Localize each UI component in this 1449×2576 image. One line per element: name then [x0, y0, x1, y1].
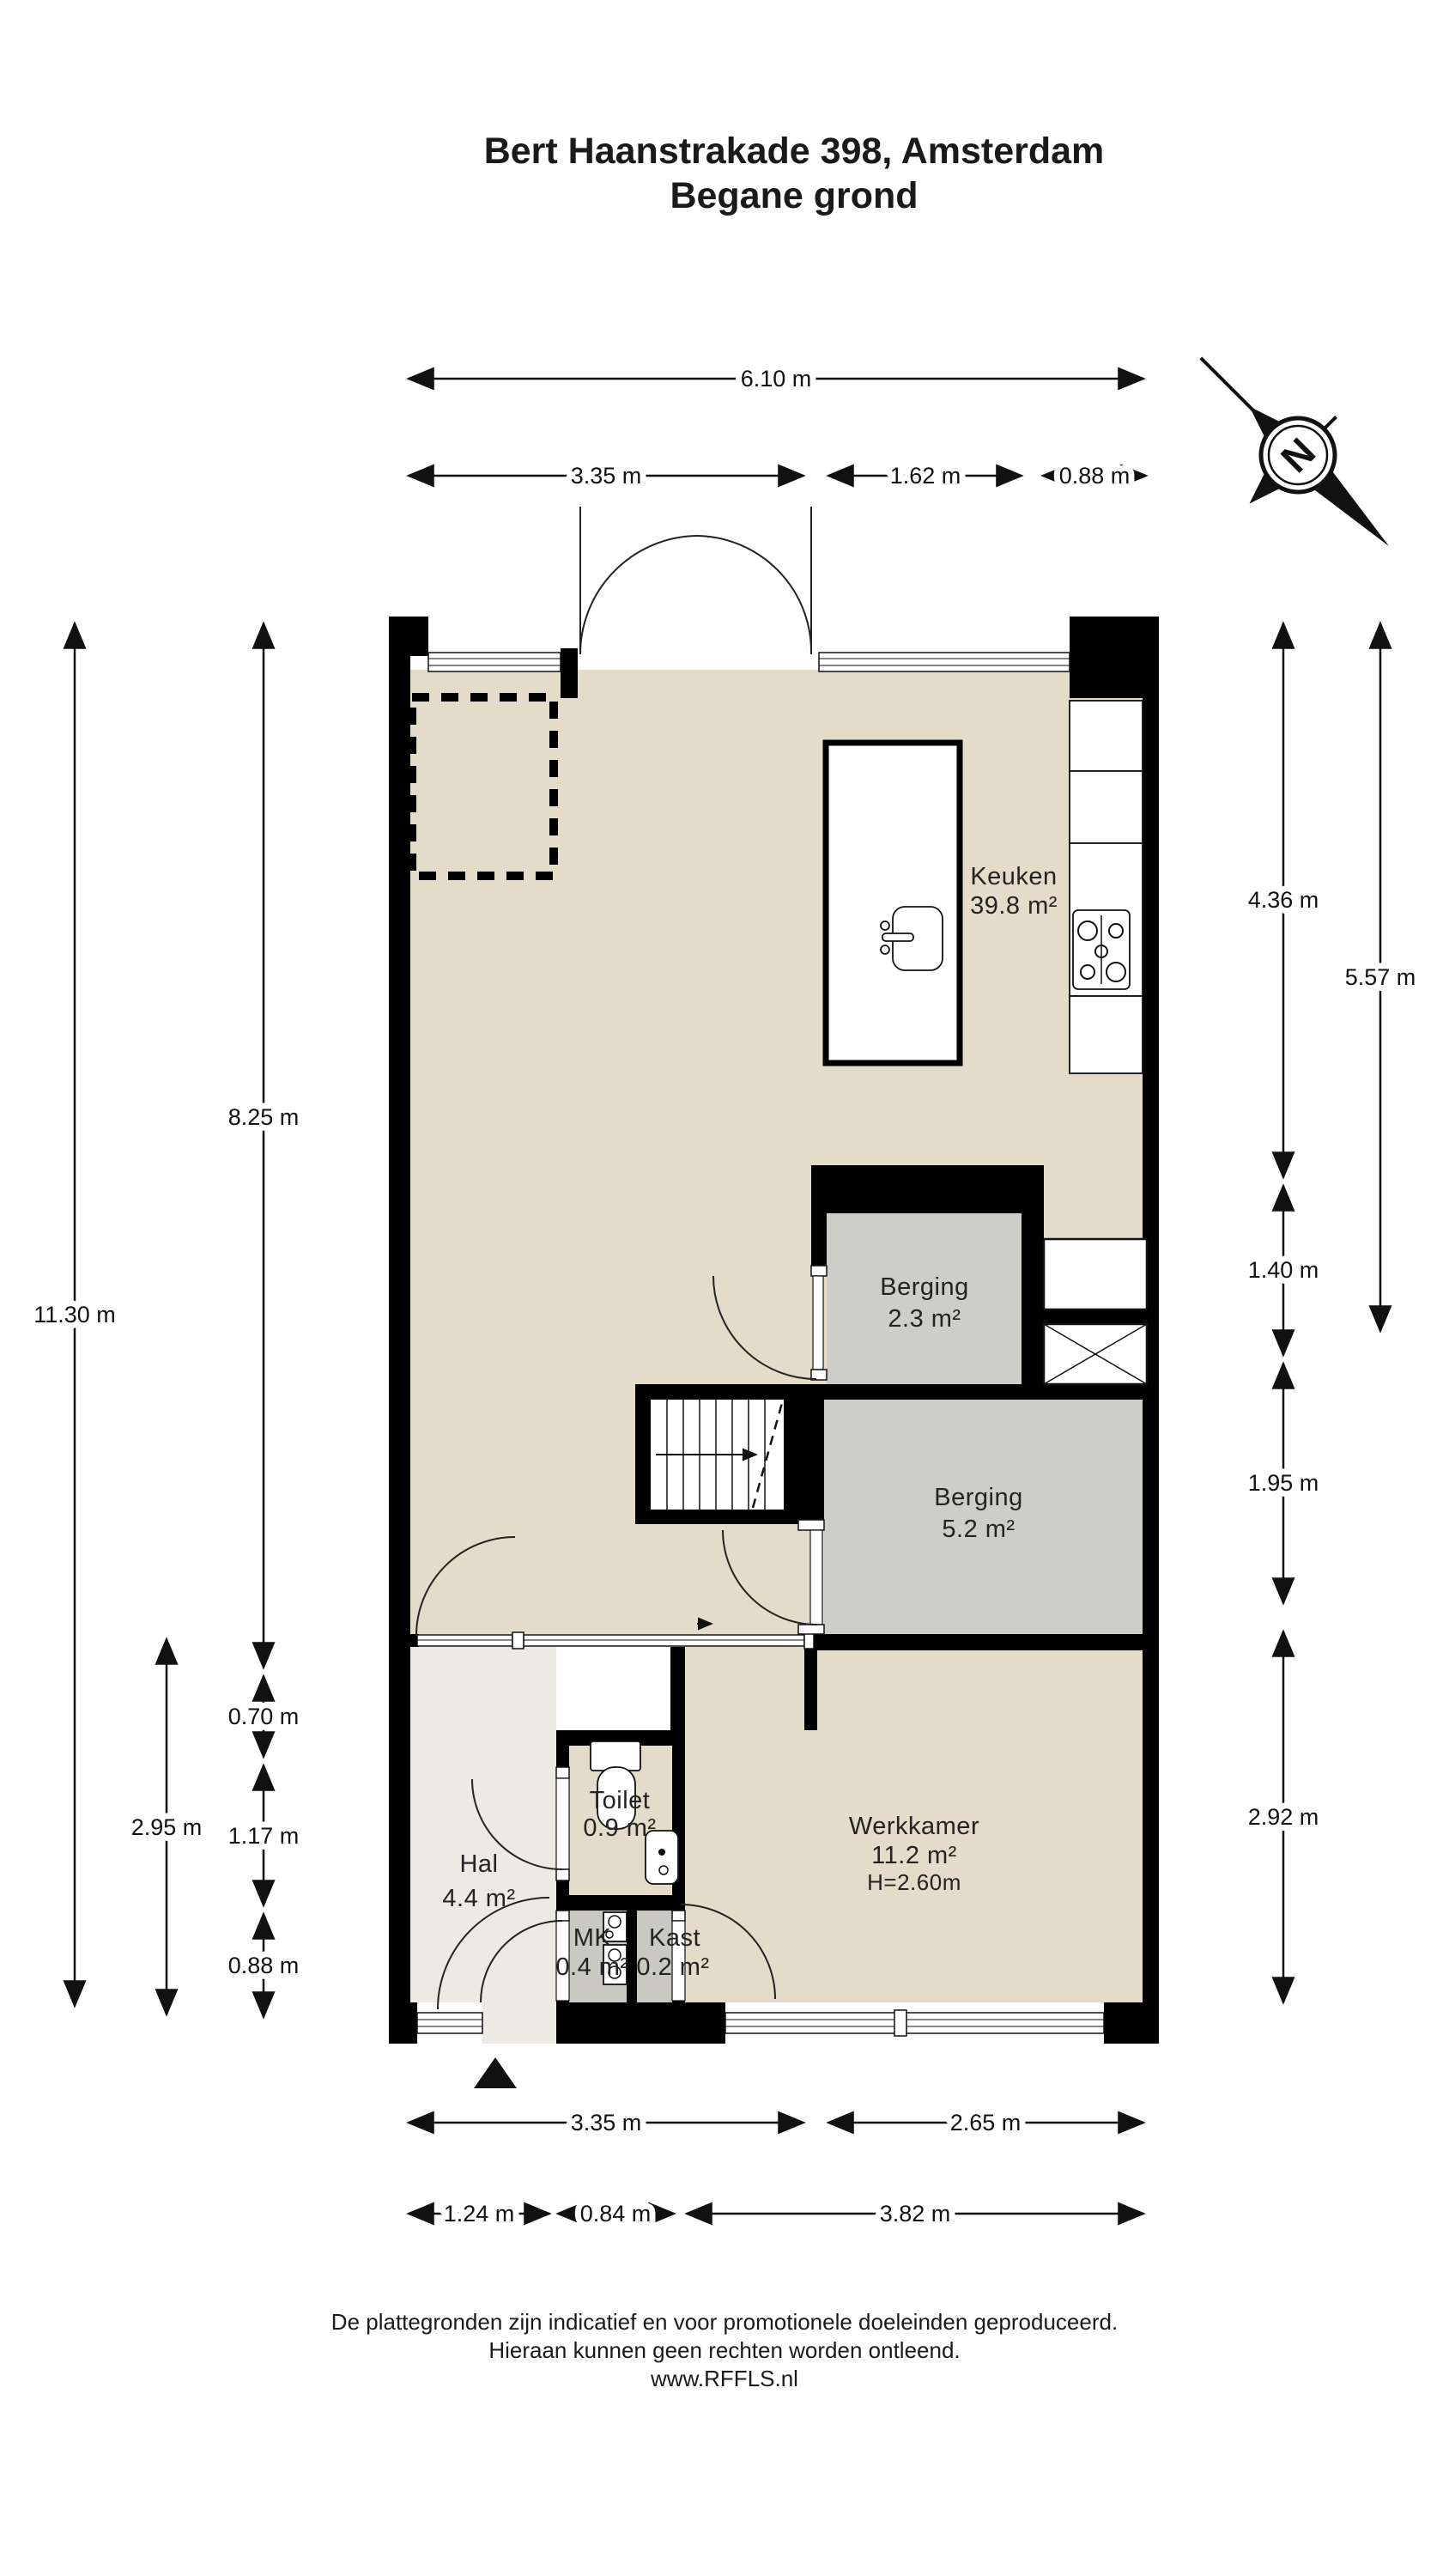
label-werkkamer: Werkkamer: [849, 1813, 979, 1840]
dim-top-mid: 1.62 m: [890, 463, 961, 489]
window-entrance-sidelight: [417, 2013, 482, 2033]
dim-bottom-row2-mid: 0.84 m: [580, 2201, 652, 2227]
dim-bottom-right: 2.65 m: [950, 2110, 1022, 2136]
toilet-cistern-icon: [591, 1741, 640, 1771]
floorplan-page: Bert Haanstrakade 398, Amsterdam Begane …: [0, 0, 1449, 2576]
dim-left-small2: 1.17 m: [228, 1823, 300, 1849]
dim-bottom-row2-right: 3.82 m: [880, 2201, 951, 2227]
label-berging-groot: Berging: [934, 1484, 1022, 1511]
entrance-gap-floor: [482, 2002, 556, 2044]
label-mk: MK: [573, 1924, 612, 1952]
label-kast-area: 0.2 m²: [636, 1953, 709, 1981]
french-door-right-arc: [695, 536, 811, 654]
disclaimer-website: www.RFFLS.nl: [0, 2365, 1449, 2393]
label-mk-area: 0.4 m²: [555, 1953, 628, 1981]
window-werkkamer: [725, 2013, 1104, 2033]
dim-right-berging: 1.95 m: [1248, 1470, 1319, 1496]
dim-bottom-left: 3.35 m: [571, 2110, 642, 2136]
dim-left-hall: 2.95 m: [131, 1814, 203, 1840]
window-top-left: [428, 653, 561, 671]
label-keuken: Keuken: [970, 863, 1057, 890]
title-address: Bert Haanstrakade 398, Amsterdam: [322, 129, 1266, 173]
faucet-icon: [882, 933, 913, 941]
disclaimer-line2: Hieraan kunnen geen rechten worden ontle…: [0, 2336, 1449, 2365]
compass-icon: N: [1152, 319, 1427, 594]
kitchen-island: [826, 743, 960, 1063]
disclaimer: De plattegronden zijn indicatief en voor…: [0, 2308, 1449, 2393]
dim-right-outer: 5.57 m: [1345, 964, 1416, 990]
dim-left-small1: 0.70 m: [228, 1704, 300, 1729]
page-title: Bert Haanstrakade 398, Amsterdam Begane …: [322, 129, 1266, 218]
kitchen-counter: [1070, 701, 1143, 1073]
label-werkkamer-height: H=2.60m: [867, 1869, 961, 1895]
label-werkkamer-area: 11.2 m²: [871, 1842, 957, 1869]
shaft-crossed: [1044, 1324, 1147, 1384]
label-kast: Kast: [649, 1924, 700, 1952]
dim-right-kitchen: 4.36 m: [1248, 887, 1319, 913]
dim-left-small3: 0.88 m: [228, 1953, 300, 1978]
dim-top-total: 6.10 m: [741, 366, 812, 392]
window-top-right: [819, 653, 1070, 671]
label-keuken-area: 39.8 m²: [970, 892, 1058, 920]
disclaimer-line1: De plattegronden zijn indicatief en voor…: [0, 2308, 1449, 2336]
dim-left-total: 11.30 m: [33, 1302, 116, 1327]
label-berging-groot-area: 5.2 m²: [942, 1516, 1015, 1543]
label-toilet-area: 0.9 m²: [583, 1814, 656, 1842]
label-berging-klein-area: 2.3 m²: [888, 1305, 961, 1333]
label-hal-area: 4.4 m²: [442, 1885, 515, 1912]
french-door-left-arc: [580, 536, 695, 654]
dim-bottom-row2-left: 1.24 m: [444, 2201, 515, 2227]
dim-top-right: 0.88 m: [1059, 463, 1131, 489]
shaft-niche: [1044, 1239, 1147, 1309]
label-hal: Hal: [459, 1850, 498, 1878]
room-hal-floor: [410, 1647, 556, 2002]
dim-right-werkkamer: 2.92 m: [1248, 1804, 1319, 1830]
title-floor: Begane grond: [322, 173, 1266, 218]
floorplan-drawing: Keuken 39.8 m² Berging 2.3 m² Berging 5.…: [0, 0, 1449, 2576]
label-toilet: Toilet: [590, 1787, 651, 1814]
dim-left-upper: 8.25 m: [228, 1104, 300, 1130]
entrance-marker-icon: [474, 2057, 517, 2088]
dim-right-shaft: 1.40 m: [1248, 1257, 1319, 1283]
window-mullion: [894, 2010, 906, 2036]
label-berging-klein: Berging: [880, 1273, 968, 1301]
stove-icon: [1073, 910, 1130, 989]
dim-top-left: 3.35 m: [571, 463, 642, 489]
